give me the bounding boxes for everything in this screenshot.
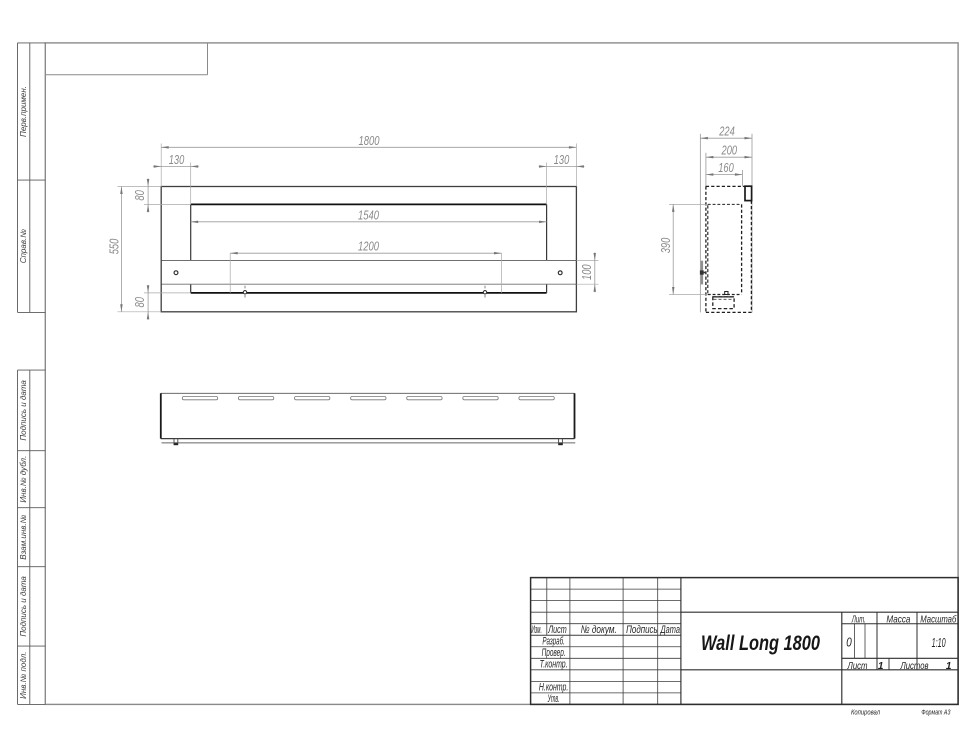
- svg-text:Подпись и дата: Подпись и дата: [19, 380, 28, 441]
- svg-text:200: 200: [721, 143, 738, 158]
- svg-text:0: 0: [846, 635, 852, 650]
- svg-text:80: 80: [132, 190, 147, 201]
- svg-text:Инв.№ подл.: Инв.№ подл.: [19, 651, 28, 698]
- svg-text:Wall Long 1800: Wall Long 1800: [701, 632, 820, 655]
- svg-text:80: 80: [132, 297, 147, 308]
- svg-text:130: 130: [554, 152, 570, 167]
- svg-text:Листов: Листов: [900, 661, 929, 672]
- svg-text:Копировал: Копировал: [851, 707, 881, 716]
- svg-text:Лист: Лист: [548, 624, 567, 636]
- svg-text:Перв.примен.: Перв.примен.: [19, 86, 28, 137]
- svg-text:Изм.: Изм.: [531, 624, 542, 636]
- svg-text:Инв.№ дубл.: Инв.№ дубл.: [19, 456, 28, 503]
- svg-text:130: 130: [169, 152, 185, 167]
- svg-text:Подпись и дата: Подпись и дата: [19, 576, 28, 637]
- svg-text:160: 160: [718, 160, 734, 175]
- svg-text:Лит.: Лит.: [851, 614, 866, 626]
- svg-text:Утв.: Утв.: [547, 693, 559, 705]
- svg-text:№ докум.: № докум.: [581, 624, 617, 636]
- svg-text:Т.контр.: Т.контр.: [540, 658, 568, 670]
- svg-text:390: 390: [658, 237, 673, 253]
- svg-text:Справ.№: Справ.№: [19, 229, 28, 263]
- svg-text:Взам.инв.№: Взам.инв.№: [19, 514, 28, 559]
- svg-text:Н.контр.: Н.контр.: [539, 682, 569, 694]
- svg-text:Провер.: Провер.: [542, 647, 566, 659]
- svg-text:1:10: 1:10: [932, 635, 946, 650]
- svg-text:Масса: Масса: [886, 614, 910, 626]
- svg-text:224: 224: [719, 124, 735, 139]
- svg-text:Дата: Дата: [659, 624, 680, 636]
- svg-text:Подпись: Подпись: [626, 624, 658, 636]
- svg-text:Разраб.: Разраб.: [542, 635, 565, 647]
- svg-text:Лист: Лист: [847, 661, 868, 672]
- svg-text:550: 550: [106, 238, 121, 254]
- svg-text:1200: 1200: [358, 239, 379, 254]
- svg-text:100: 100: [579, 264, 594, 280]
- svg-text:Масштаб: Масштаб: [920, 614, 957, 626]
- svg-text:1800: 1800: [359, 133, 380, 148]
- svg-text:1540: 1540: [358, 207, 379, 222]
- svg-text:1: 1: [946, 661, 952, 672]
- svg-text:Формат А3: Формат А3: [921, 707, 951, 716]
- svg-text:1: 1: [878, 661, 884, 672]
